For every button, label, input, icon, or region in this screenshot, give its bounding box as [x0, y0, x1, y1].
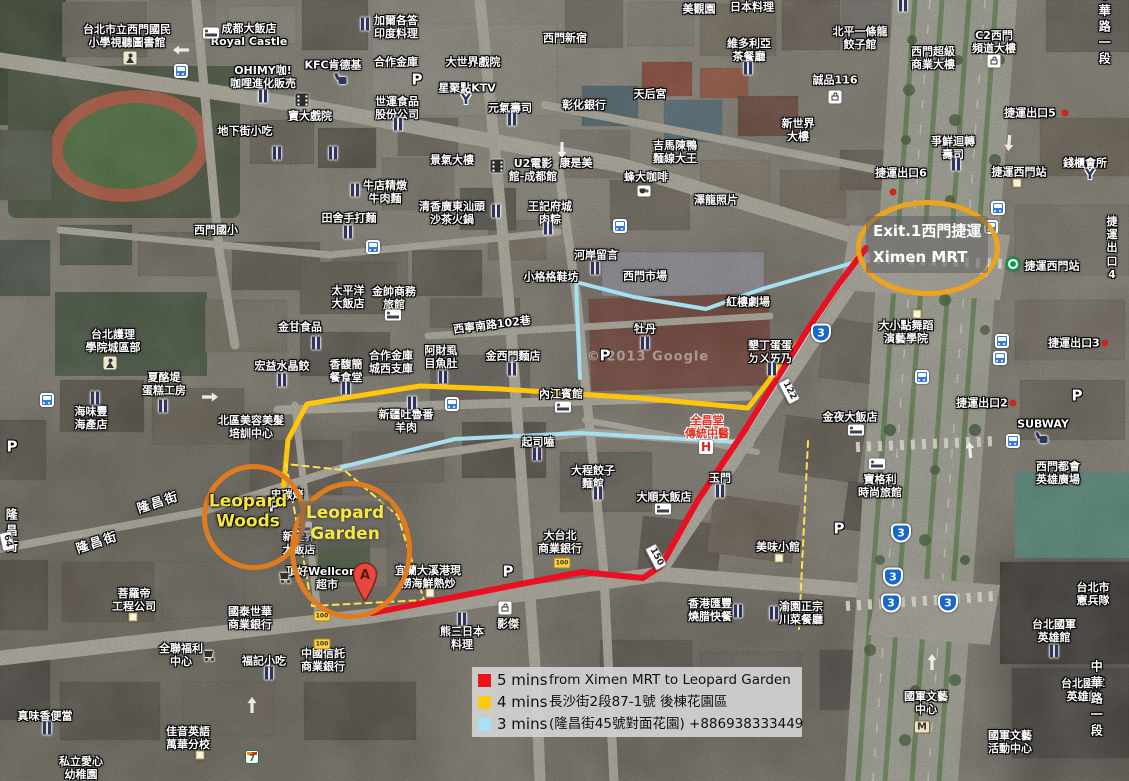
map-label: 全聯福利 中心 [159, 642, 203, 668]
parking-icon: P [1072, 389, 1083, 404]
map-label: 捷運西門站 [1025, 259, 1080, 272]
hospital-icon: H [699, 440, 713, 454]
map-label: 大台北 商業銀行 [538, 529, 582, 555]
bus-stop-icon [1006, 434, 1020, 448]
map-label: 清香廣東汕頭 沙茶火鍋 [419, 200, 485, 226]
map-label: 澤龍照片 [694, 193, 738, 206]
cafe-icon [638, 186, 651, 197]
parking-icon: P [503, 565, 514, 580]
restaurant-icon [769, 607, 779, 620]
mrt-logo-icon [1006, 257, 1020, 271]
map-label: 西門新宿 [543, 31, 587, 44]
bus-stop-icon [366, 240, 380, 254]
bus-stop-icon [991, 201, 1005, 215]
cinema-icon [296, 94, 309, 107]
poi-marker [913, 310, 922, 319]
restaurant-icon [272, 147, 282, 160]
map-label: 台北國軍 英雄館 [1032, 618, 1076, 644]
restaurant-icon [341, 382, 351, 395]
highway-3-shield: 3 [883, 568, 903, 587]
map-label: 牛店精燉 牛肉麵 [363, 179, 407, 205]
map-label: 河岸留言 [574, 248, 618, 261]
map-label: 台北市 憲兵隊 [1077, 581, 1110, 607]
metro-entrance-icon: M [914, 721, 930, 734]
map-labels-layer: 台北市立西門國民 小學視聽圖書館成都大飯店 Royal CastleOHIMY咖… [0, 0, 1129, 781]
map-label: 海味豐 海產店 [75, 405, 108, 431]
map-label: 美味小館 [756, 540, 800, 553]
restaurant-icon [407, 397, 417, 410]
legend-desc: from Ximen MRT to Leopard Garden [549, 673, 791, 687]
map-label: 隆昌街 [74, 528, 120, 556]
map-label: 全昌堂 傳統中醫 [685, 414, 729, 440]
map-label: 影傑 [497, 617, 519, 630]
school-icon [104, 357, 117, 370]
map-label: 墾丁蛋蛋 ㄉㄨㄞ乃 [748, 339, 792, 365]
map-label: 玉門 [709, 471, 731, 484]
legend-desc: (隆昌街45號對面花園) +886938333449 [549, 717, 803, 731]
restaurant-icon [507, 363, 517, 376]
map-label: 香馥簡 餐食堂 [330, 358, 363, 384]
map-label: OHIMY咖! 咖哩進化販売 [230, 64, 296, 90]
map-label: 中華路一段 [1097, 0, 1111, 68]
map-label: 西門市場 [623, 269, 667, 282]
leopard-garden-label: Leopard Garden [299, 501, 391, 548]
bus-stop-icon [995, 334, 1009, 348]
legend-swatch-yellow [478, 696, 491, 709]
restaurant-icon [311, 337, 321, 350]
parking-icon: P [7, 440, 18, 455]
map-label: 牡丹 [634, 322, 656, 335]
exit-dot [1010, 400, 1017, 407]
restaurant-icon [767, 363, 777, 376]
map-label: KFC肯德基 [304, 58, 361, 71]
road-number-shield: 150 [644, 543, 667, 571]
bus-stop-icon [445, 397, 459, 411]
restaurant-icon [1049, 645, 1059, 658]
bus-stop-icon [40, 393, 54, 407]
map-label: 大世界戲院 [446, 55, 501, 68]
map-label: 西門超級 商業大樓 [911, 45, 955, 71]
restaurant-icon [743, 62, 753, 75]
shopping-icon [988, 55, 1001, 68]
map-label: 地下街小吃 [218, 124, 273, 137]
map-label: 國軍文藝 中心 [904, 690, 948, 716]
hotel-icon [848, 425, 864, 436]
highway-3-shield: 3 [881, 594, 901, 613]
road-number-shield: 122 [777, 377, 800, 405]
restaurant-icon [898, 0, 908, 12]
recommend-icon [1037, 432, 1050, 444]
map-label: 金夜大飯店 [823, 410, 878, 423]
map-label: 太平洋 大飯店 [332, 284, 365, 310]
map-label: 中國信託 商業銀行 [301, 647, 345, 673]
map-label: 彰化銀行 [562, 98, 606, 111]
legend-row-blue: 3 mins (隆昌街45號對面花園) +886938333449 [478, 713, 802, 735]
poi-marker [129, 613, 138, 622]
map-label: U2電影 館-成都館 [509, 157, 558, 183]
restaurant-icon [733, 605, 743, 618]
restaurant-icon [951, 158, 961, 171]
supermarket-icon [202, 649, 216, 661]
map-label: 宏益水晶餃 [255, 359, 310, 372]
highway-3-shield: 3 [938, 594, 958, 613]
map-label: 捷運西門站 [992, 165, 1047, 178]
poi-marker [1013, 179, 1022, 188]
restaurant-icon [42, 722, 52, 735]
map-label: 維多利亞 茶餐廳 [727, 37, 771, 63]
map-label: 金西門麵店 [486, 349, 541, 362]
hotel-icon [385, 310, 401, 321]
restaurant-icon [532, 448, 542, 461]
poi-marker [196, 751, 205, 760]
map-label: 小格格鞋坊 [524, 270, 579, 283]
restaurant-icon [343, 226, 353, 239]
legend-panel: 5 mins from Ximen MRT to Leopard Garden … [472, 667, 802, 737]
google-watermark: © 2013 Google [587, 350, 709, 365]
leopard-woods-label: Leopard Woods [209, 492, 287, 533]
map-label: 大小點舞蹈 演藝學院 [879, 319, 934, 345]
seven-eleven-icon [245, 750, 259, 764]
map-label: 捷運出口3 [1048, 336, 1100, 349]
restaurant-icon [543, 222, 553, 235]
map-label: 西門都會 英雄廣場 [1036, 460, 1080, 486]
map-label: 台北國軍 英雄館 [1061, 677, 1105, 703]
oneway-arrow-icon [965, 442, 975, 459]
bar-icon: Y [1085, 168, 1095, 182]
road-number-shield: 64 [0, 531, 15, 552]
map-canvas[interactable]: 台北市立西門國民 小學視聽圖書館成都大飯店 Royal CastleOHIMY咖… [0, 0, 1129, 781]
restaurant-icon [491, 205, 501, 218]
map-label: 中華路一段 [1089, 660, 1103, 740]
restaurant-icon [507, 113, 517, 126]
parking-icon: P [834, 522, 845, 537]
map-label: 熊三日本 料理 [440, 625, 484, 651]
restaurant-icon [277, 374, 287, 387]
restaurant-icon [715, 485, 725, 498]
legend-desc: 長沙街2段87-1號 後棟花園區 [549, 695, 728, 709]
highway-3-shield: 3 [891, 524, 911, 543]
restaurant-icon [90, 392, 100, 405]
oneway-arrow-icon [248, 697, 257, 713]
hotel-icon [555, 402, 571, 413]
bus-stop-icon [993, 351, 1007, 365]
legend-time: 5 mins [497, 673, 549, 688]
highway-3-shield: 3 [811, 324, 831, 343]
map-label: 阿財虱 目魚肚 [425, 344, 458, 370]
parking-icon: P [412, 73, 423, 88]
map-label: 吉馬陳鴨 麵線大王 [653, 139, 697, 165]
map-label: 合作金庫 城西支庫 [369, 349, 413, 375]
bar-icon: Y [461, 93, 471, 107]
cinema-icon [491, 160, 504, 173]
map-label: 成都大飯店 Royal Castle [211, 22, 288, 48]
exit-dot [1102, 340, 1109, 347]
map-label: 金帥商務 旅館 [372, 285, 416, 311]
map-label: 紅樓劇場 [726, 295, 770, 308]
map-label: 北平一條龍 餃子館 [833, 25, 888, 51]
map-label: 田舍手打麵 [322, 211, 377, 224]
map-label: 金甘食品 [278, 320, 322, 333]
map-label: 蜂大咖啡 [624, 170, 668, 183]
recommend-icon [336, 73, 349, 85]
legend-row-red: 5 mins from Ximen MRT to Leopard Garden [478, 669, 802, 691]
price-tag-icon: 100 [554, 558, 571, 569]
map-label: C2西門 頻道大樓 [972, 29, 1016, 55]
oneway-arrow-icon [202, 393, 218, 402]
restaurant-icon [590, 262, 600, 275]
restaurant-icon [593, 487, 603, 500]
marker-a-letter: A [360, 568, 370, 583]
map-label: 內江賓館 [539, 387, 583, 400]
map-label: 大順大飯店 [637, 490, 692, 503]
oneway-arrow-icon [558, 142, 567, 158]
school-icon [124, 52, 137, 65]
bus-stop-icon [915, 370, 929, 384]
restaurant-icon [158, 400, 168, 413]
map-label: 美觀園 [683, 2, 716, 15]
map-label: 寶格利 時尚旅館 [858, 473, 902, 499]
map-label: 捷運出口4 [1104, 215, 1121, 281]
map-label: 捷運出口6 [875, 166, 927, 179]
exit-dot [890, 189, 897, 196]
restaurant-icon [328, 147, 338, 160]
map-label: 佳音英語 萬華分校 [166, 725, 210, 751]
map-label: 景氣大樓 [430, 153, 474, 166]
map-label: 國泰世華 商業銀行 [228, 605, 272, 631]
legend-time: 3 mins [497, 717, 549, 732]
ximen-mrt-label: Exit.1西門捷運 Ximen MRT [866, 216, 988, 273]
map-label: 捷運出口2 [956, 396, 1008, 409]
map-label: 台北護理 學院城區部 [86, 328, 141, 354]
map-label: 夏酪堤 蛋糕工房 [142, 371, 186, 397]
restaurant-icon [457, 613, 467, 626]
map-label: 北區美容美髮 培訓中心 [218, 414, 284, 440]
poi-marker [426, 589, 435, 598]
shopping-icon [829, 91, 842, 104]
restaurant-icon [264, 667, 274, 680]
map-label: 捷運出口5 [1004, 106, 1056, 119]
map-label: 西門國小 [194, 223, 238, 236]
map-label: 寶大戲院 [288, 109, 332, 122]
poi-marker [775, 554, 784, 563]
map-label: 康是美 [560, 156, 593, 169]
map-label: 合作金庫 [374, 55, 418, 68]
bus-stop-icon [174, 64, 188, 78]
map-label: 新世界 大樓 [782, 117, 815, 143]
oneway-arrow-icon [1004, 135, 1014, 152]
oneway-arrow-icon [173, 46, 189, 55]
map-label: SUBWAY [1017, 417, 1069, 430]
restaurant-icon [258, 90, 268, 103]
marker-a-pin[interactable]: A [352, 562, 378, 602]
exit-dot [1062, 110, 1069, 117]
map-label: 國軍文藝 活動中心 [988, 729, 1032, 755]
restaurant-icon [640, 337, 650, 350]
legend-swatch-blue [478, 718, 491, 731]
map-label: 台北市立西門國民 小學視聽圖書館 [83, 23, 171, 49]
map-label: 菩羅帝 工程公司 [112, 587, 156, 613]
hotel-icon [869, 459, 885, 470]
hotel-icon [655, 504, 671, 515]
restaurant-icon [438, 371, 448, 384]
map-label: 新疆吐魯番 羊肉 [379, 408, 434, 434]
legend-time: 4 mins [497, 695, 549, 710]
map-label: 日本料理 [730, 0, 774, 13]
map-label: 天后宮 [634, 87, 667, 100]
bus-stop-icon [613, 219, 627, 233]
shopping-icon [499, 602, 512, 615]
oneway-arrow-icon [928, 654, 937, 670]
map-label: 隆昌街 [135, 488, 181, 516]
restaurant-icon [360, 18, 370, 31]
hotel-icon [203, 28, 219, 39]
map-label: 西寧南路102巷 [453, 314, 532, 337]
map-label: 私立愛心 幼稚園 [59, 755, 103, 781]
restaurant-icon [350, 184, 360, 197]
map-label: 加爾各答 印度料理 [374, 14, 418, 40]
legend-row-yellow: 4 mins 長沙街2段87-1號 後棟花園區 [478, 691, 802, 713]
map-label: 渝園正宗 川菜餐廳 [779, 600, 823, 626]
map-label: 香港匯豐 燒腊快餐 [688, 597, 732, 623]
map-label: 誠品116 [813, 73, 858, 86]
price-tag-icon: 100 [314, 639, 331, 650]
restaurant-icon [393, 118, 403, 131]
legend-swatch-red [478, 674, 491, 687]
supermarket-icon [278, 571, 292, 583]
